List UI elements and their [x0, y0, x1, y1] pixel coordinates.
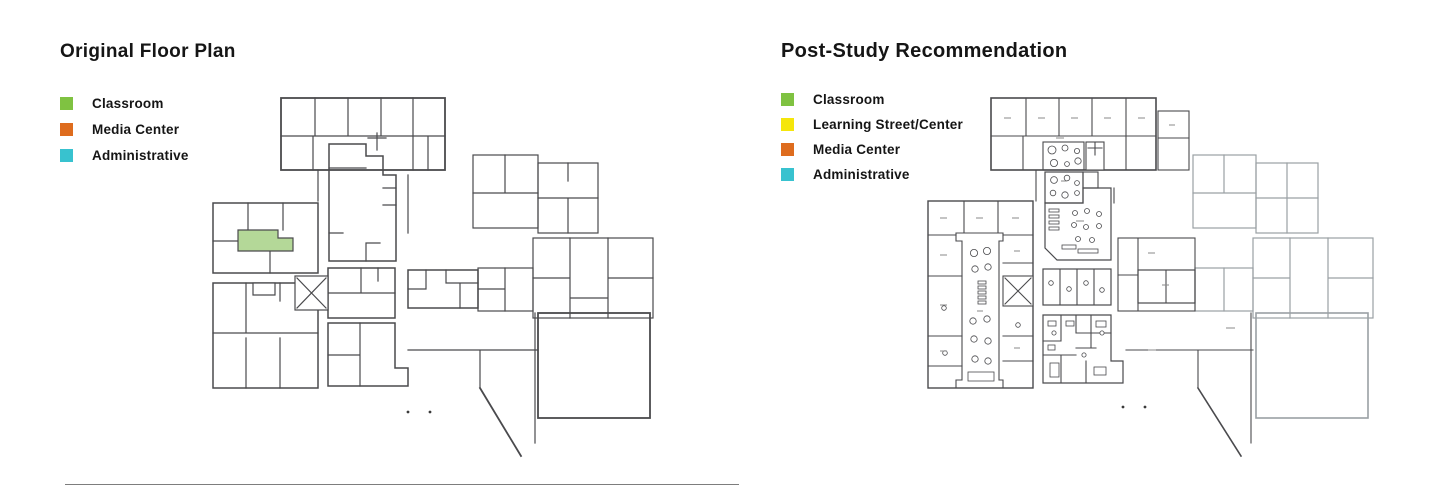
legend-label: Media Center [92, 122, 179, 137]
legend-label: Administrative [813, 167, 910, 182]
legend-row-classroom: Classroom [60, 90, 189, 116]
administrative-swatch [60, 149, 73, 162]
left-legend: Classroom Media Center Administrative [60, 90, 189, 168]
classroom-swatch [60, 97, 73, 110]
original-floor-plan-drawing [208, 93, 670, 475]
legend-label: Classroom [813, 92, 885, 107]
classroom-swatch [781, 93, 794, 106]
left-panel-underline [65, 484, 739, 485]
right-panel-title: Post-Study Recommendation [781, 40, 1067, 63]
post-study-floor-plan-drawing [926, 93, 1390, 475]
legend-row-administrative: Administrative [60, 142, 189, 168]
legend-row-media-center: Media Center [60, 116, 189, 142]
future-phase-walls [1193, 155, 1373, 418]
building-walls [281, 98, 650, 456]
legend-label: Classroom [92, 96, 164, 111]
entry-dots [1122, 406, 1147, 409]
left-panel-title: Original Floor Plan [60, 41, 236, 63]
learning-street-swatch [781, 118, 794, 131]
media-center-zone-original [329, 144, 396, 261]
media-center-swatch [60, 123, 73, 136]
legend-label: Administrative [92, 148, 189, 163]
media-center-swatch [781, 143, 794, 156]
page: { "colors": { "classroom": "#7FC241", "c… [0, 0, 1455, 491]
legend-label: Media Center [813, 142, 900, 157]
administrative-swatch [781, 168, 794, 181]
entry-dots [407, 411, 432, 414]
